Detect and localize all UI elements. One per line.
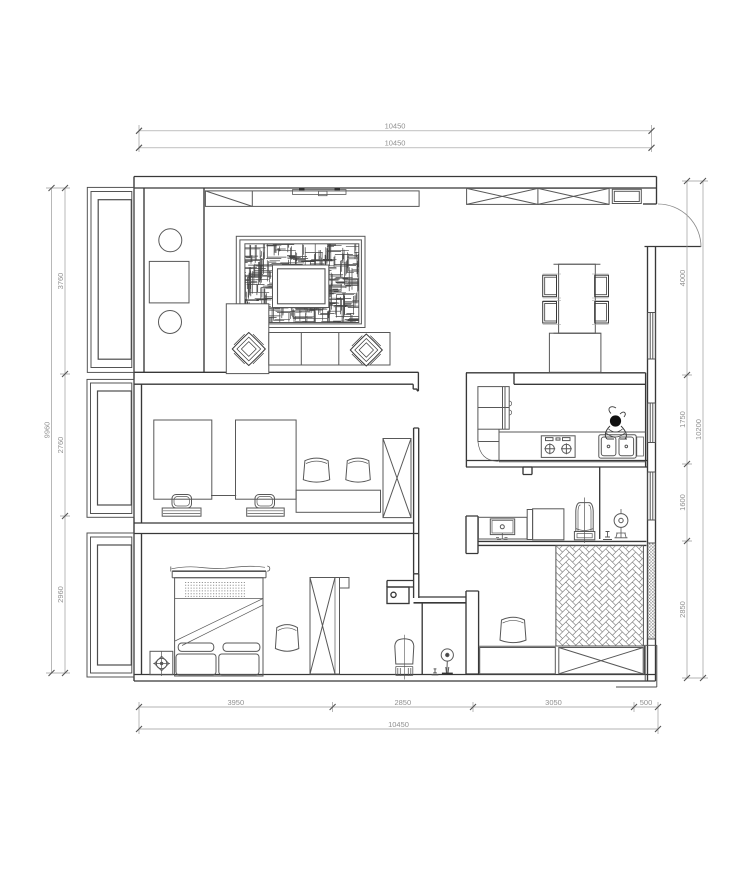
svg-text:3760: 3760	[56, 273, 65, 290]
svg-text:2760: 2760	[56, 437, 65, 454]
svg-text:10450: 10450	[385, 122, 406, 131]
svg-text:3950: 3950	[227, 698, 244, 707]
svg-text:10200: 10200	[694, 419, 703, 440]
svg-text:10450: 10450	[388, 720, 409, 729]
svg-text:10450: 10450	[385, 139, 406, 148]
svg-text:3050: 3050	[545, 698, 562, 707]
svg-text:1600: 1600	[678, 494, 687, 511]
svg-text:1750: 1750	[678, 411, 687, 428]
svg-text:4000: 4000	[678, 270, 687, 287]
svg-text:500: 500	[640, 698, 653, 707]
svg-text:2850: 2850	[394, 698, 411, 707]
svg-text:9960: 9960	[42, 422, 51, 439]
svg-text:2850: 2850	[678, 601, 687, 618]
svg-text:2960: 2960	[56, 586, 65, 603]
